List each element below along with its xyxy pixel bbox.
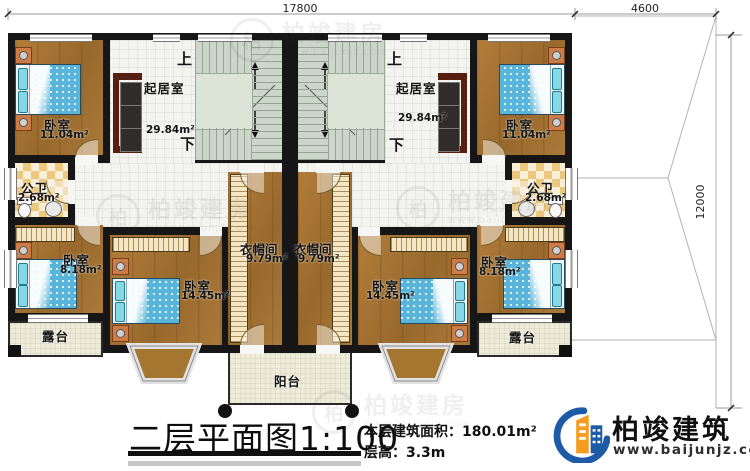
room-label: 露台 (42, 326, 69, 345)
brand-website: www.baijunjz.com (613, 442, 750, 458)
stairs-down-label: 下 (389, 134, 404, 155)
stairs-down-label: 下 (180, 133, 195, 154)
room-area: 9.79m² (298, 253, 339, 265)
room-label: 起居室 (144, 78, 185, 97)
room-area: 9.79m² (246, 253, 287, 265)
room-label: 起居室 (396, 78, 437, 97)
room-area: 8.18m² (479, 266, 520, 278)
floor-area-row: 本层建筑面积：180.01m² (364, 421, 537, 441)
title-underline-shadow (128, 461, 361, 466)
terrace-corner-post (559, 345, 572, 357)
room-area: 11.04m² (502, 129, 551, 141)
floor-height-row: 层高：3.3m (364, 442, 445, 462)
room-label: 露台 (509, 327, 536, 346)
room-area: 2.68m² (18, 192, 59, 204)
title-underline (128, 451, 361, 456)
bay-windows (0, 0, 750, 471)
room-area: 29.84m² (146, 124, 195, 136)
room-area: 29.84m² (398, 112, 447, 124)
floor-height-value: 3.3m (406, 445, 445, 461)
room-area: 11.04m² (40, 129, 89, 141)
floor-plan-canvas: 17800 4600 12000 (0, 0, 750, 471)
room-area: 14.45m² (366, 290, 415, 302)
room-area: 2.68m² (525, 192, 566, 204)
room-area: 14.45m² (181, 290, 230, 302)
terrace-corner-post (8, 345, 21, 357)
room-area: 8.18m² (60, 264, 101, 276)
floor-area-value: 180.01m² (462, 424, 537, 440)
stairs-up-label: 上 (177, 48, 192, 69)
brand-logo-icon (552, 405, 610, 463)
stairs-up-label: 上 (387, 48, 402, 69)
room-label: 阳台 (274, 371, 301, 390)
